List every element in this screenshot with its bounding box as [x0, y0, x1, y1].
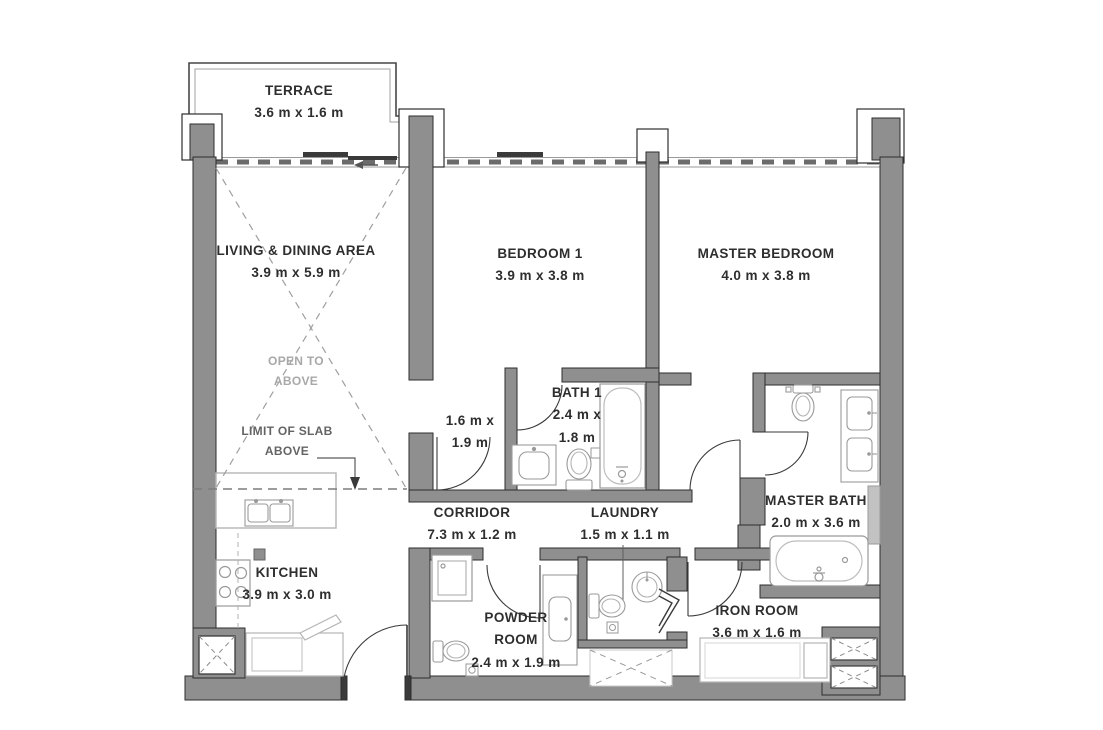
- room-name: LIVING & DINING AREA: [216, 240, 375, 262]
- label-master-bedroom: MASTER BEDROOM 4.0 m x 3.8 m: [698, 243, 835, 288]
- room-dims: 2.0 m x 3.6 m: [765, 512, 867, 534]
- washer-icon: [432, 555, 472, 601]
- niche-shelf: [868, 486, 880, 544]
- room-name: MASTER BATH: [765, 490, 867, 512]
- wall-masterbath-bottom: [760, 585, 880, 598]
- room-name: CORRIDOR: [427, 502, 516, 524]
- wall-bath1-top: [562, 368, 659, 382]
- label-iron-room: IRON ROOM 3.6 m x 1.6 m: [712, 600, 801, 645]
- toilet-icon: [589, 594, 625, 618]
- wall-corridor-top: [409, 490, 692, 502]
- room-name: BEDROOM 1: [495, 243, 584, 265]
- wall-living-bedroom1: [409, 116, 433, 380]
- bathtub-icon: [770, 536, 868, 586]
- room-dims: 1.9 m: [446, 432, 495, 454]
- room-dims: 2.4 m x 1.9 m: [471, 652, 560, 674]
- toilet-icon: [566, 449, 592, 490]
- label-laundry: LAUNDRY 1.5 m x 1.1 m: [580, 502, 669, 547]
- label-living: LIVING & DINING AREA 3.9 m x 5.9 m: [216, 240, 375, 285]
- room-name: LAUNDRY: [580, 502, 669, 524]
- window-frame: [497, 152, 543, 157]
- wall-masterbath-top: [753, 373, 880, 385]
- room-dims: 3.6 m x 1.6 m: [254, 102, 343, 124]
- room-name: TERRACE: [254, 80, 343, 102]
- master-bath-fixtures: [765, 385, 880, 586]
- label-master-bath: MASTER BATH 2.0 m x 3.6 m: [765, 490, 867, 535]
- shaft-x-icon: [199, 636, 235, 674]
- laundry-fixtures: [589, 545, 679, 686]
- wall-bedroom1-master: [646, 152, 659, 497]
- room-dims: 3.6 m x 1.6 m: [712, 622, 801, 644]
- room-name: ROOM: [471, 629, 560, 651]
- double-sink-icon: [245, 500, 293, 527]
- sliding-door-panel: [348, 156, 397, 160]
- kitchen-island: [216, 473, 336, 528]
- room-dims: 1.5 m x 1.1 m: [580, 524, 669, 546]
- wall-powder-west: [409, 548, 430, 678]
- shaft-x-icon: [831, 638, 877, 660]
- room-name: MASTER BEDROOM: [698, 243, 835, 265]
- kitchen-hood-icon: [254, 549, 265, 560]
- label-kitchen: KITCHEN 3.9 m x 3.0 m: [242, 562, 331, 607]
- wall-bottom-left: [185, 676, 345, 700]
- label-limit-of-slab: LIMIT OF SLAB ABOVE: [241, 422, 332, 462]
- room-name: POWDER: [471, 607, 560, 629]
- room-dims: 3.9 m x 5.9 m: [216, 262, 375, 284]
- sliding-door-panel: [303, 152, 348, 157]
- room-dims: 2.4 m x: [552, 404, 602, 426]
- label-terrace: TERRACE 3.6 m x 1.6 m: [254, 80, 343, 125]
- door-swing: [690, 440, 740, 490]
- label-closet: 1.6 m x 1.9 m: [446, 410, 495, 455]
- glass-wall: [216, 152, 880, 169]
- label-bath1: BATH 1 2.4 m x 1.8 m: [552, 382, 602, 449]
- wall-left: [193, 157, 216, 680]
- room-dims: 1.8 m: [552, 427, 602, 449]
- room-name: KITCHEN: [242, 562, 331, 584]
- floor-drain-icon: [607, 622, 618, 633]
- room-dims: 3.9 m x 3.8 m: [495, 265, 584, 287]
- ironing-counter: [700, 638, 830, 682]
- wall-right: [880, 157, 903, 700]
- room-dims: 7.3 m x 1.2 m: [427, 524, 516, 546]
- angled-wall: [659, 589, 679, 633]
- room-dims: 3.9 m x 3.0 m: [242, 584, 331, 606]
- label-open-to-above: OPEN TO ABOVE: [268, 352, 324, 392]
- door-jamb: [405, 676, 411, 700]
- room-dims: 4.0 m x 3.8 m: [698, 265, 835, 287]
- room-name: IRON ROOM: [712, 600, 801, 622]
- room-dims: 1.6 m x: [446, 410, 495, 432]
- vanity-sink-icon: [512, 445, 556, 485]
- toilet-icon: [786, 385, 820, 421]
- void-x-icon: [590, 650, 672, 686]
- floor-plan: TERRACE 3.6 m x 1.6 m LIVING & DINING AR…: [0, 0, 1103, 730]
- kitchen-bottom-counter: [246, 615, 343, 676]
- round-basin-icon: [632, 572, 662, 602]
- label-powder-room: POWDER ROOM 2.4 m x 1.9 m: [471, 607, 560, 674]
- label-bedroom1: BEDROOM 1 3.9 m x 3.8 m: [495, 243, 584, 288]
- door-swing: [765, 432, 808, 475]
- double-vanity-icon: [841, 390, 878, 482]
- shaft-x-icon: [831, 666, 877, 688]
- entry-door-swing: [343, 625, 407, 689]
- bathtub-icon: [600, 384, 645, 488]
- toilet-icon: [433, 641, 469, 662]
- label-corridor: CORRIDOR 7.3 m x 1.2 m: [427, 502, 516, 547]
- room-name: BATH 1: [552, 382, 602, 404]
